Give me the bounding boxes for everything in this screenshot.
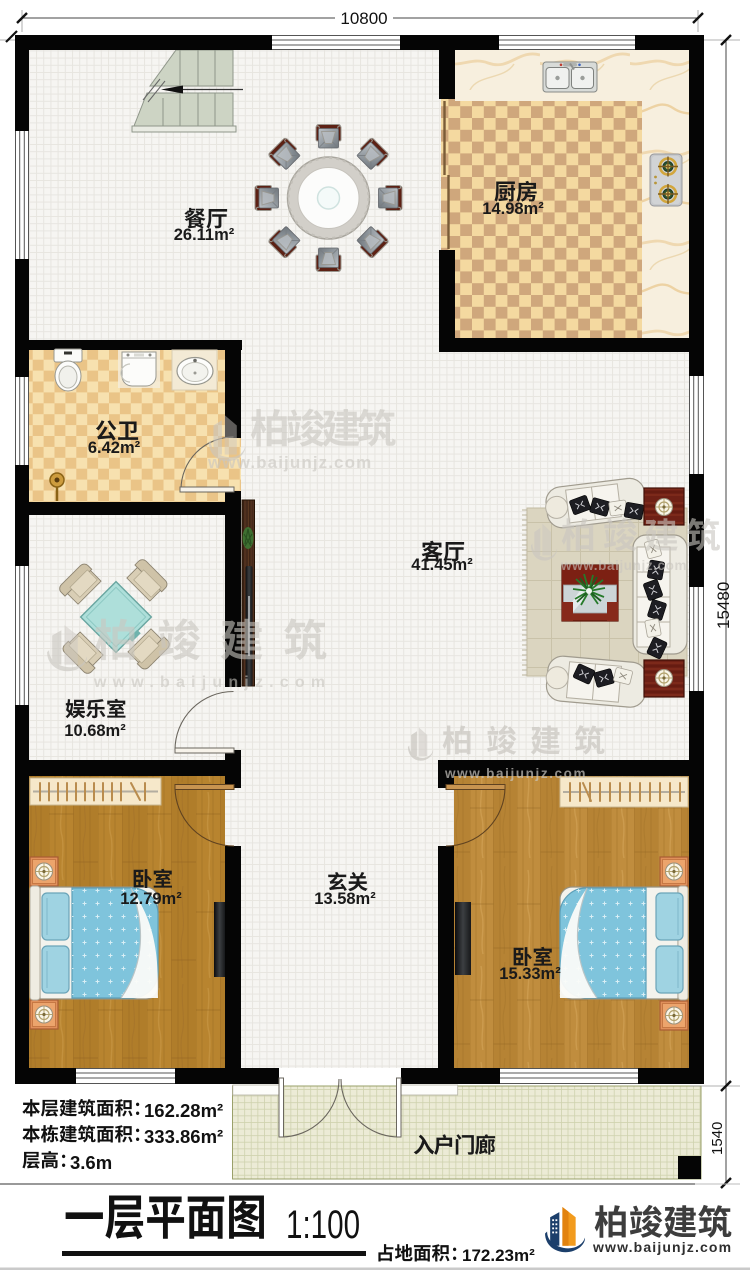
svg-text:1540: 1540 <box>709 1122 726 1155</box>
svg-text:14.98m²: 14.98m² <box>482 200 544 218</box>
svg-text:3.6m: 3.6m <box>70 1152 112 1173</box>
svg-text:12.79m²: 12.79m² <box>120 890 182 908</box>
svg-text:26.11m²: 26.11m² <box>174 226 235 244</box>
svg-text:10800: 10800 <box>340 9 387 28</box>
svg-text:333.86m²: 333.86m² <box>144 1126 223 1147</box>
svg-text:www.baijunjz.com: www.baijunjz.com <box>592 1239 732 1255</box>
svg-text:www.baijunjz.com: www.baijunjz.com <box>93 674 331 691</box>
svg-text:172.23m²: 172.23m² <box>462 1246 535 1265</box>
svg-text:6.42m²: 6.42m² <box>88 439 141 457</box>
svg-text:www.baijunjz.com: www.baijunjz.com <box>444 766 587 781</box>
svg-text:13.58m²: 13.58m² <box>314 890 376 908</box>
svg-text:10.68m²: 10.68m² <box>64 722 126 740</box>
svg-text:15.33m²: 15.33m² <box>499 965 561 983</box>
svg-text:15480: 15480 <box>714 582 733 629</box>
svg-text:41.45m²: 41.45m² <box>411 556 473 574</box>
svg-text:www.baijunjz.com: www.baijunjz.com <box>560 558 687 573</box>
svg-text:1:100: 1:100 <box>286 1203 360 1247</box>
svg-text:162.28m²: 162.28m² <box>144 1100 223 1121</box>
svg-text:www.baijunjz.com: www.baijunjz.com <box>207 453 372 472</box>
